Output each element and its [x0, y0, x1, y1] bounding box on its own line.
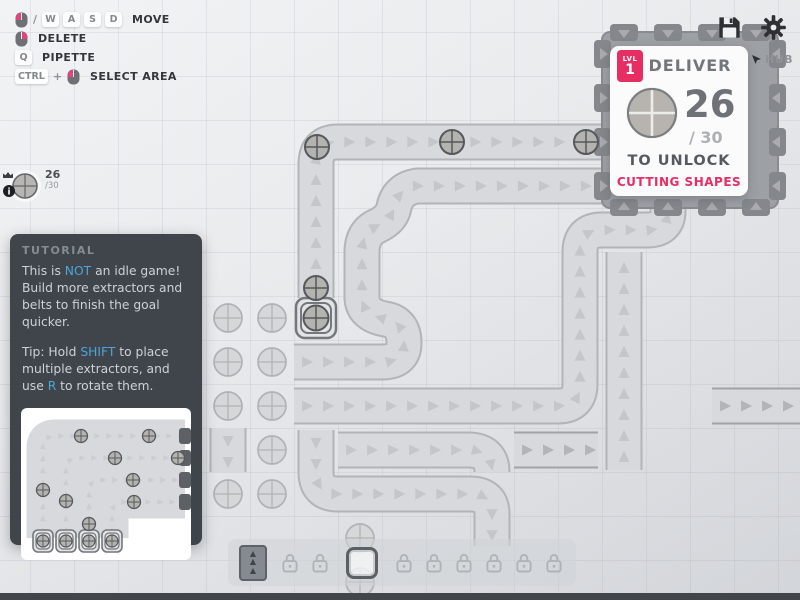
toolbar-slot-extractor-selected[interactable]	[346, 547, 378, 579]
select-area-label: SELECT AREA	[90, 70, 177, 83]
game-screen: / W A S D MOVE DELETE Q PIPETTE CTRL + S…	[0, 0, 800, 600]
tutorial-extractor-shape	[60, 535, 72, 547]
tutorial-extractor-shape	[83, 535, 95, 547]
tutorial-belts	[40, 433, 185, 538]
lock-icon	[456, 552, 473, 573]
lock-icon	[282, 552, 299, 573]
toolbar-slot-locked[interactable]	[546, 552, 563, 573]
toolbar-slot-locked[interactable]	[456, 552, 473, 573]
toolbar-slot-locked[interactable]	[516, 552, 533, 573]
move-label: MOVE	[132, 13, 170, 26]
resource-circle	[214, 392, 242, 420]
key-w: W	[42, 12, 59, 27]
resource-circle	[214, 304, 242, 332]
gear-icon	[760, 14, 787, 41]
resource-circle	[258, 436, 286, 464]
toolbar-slot-locked[interactable]	[396, 552, 413, 573]
mouse-right-click-icon	[15, 31, 28, 47]
goal-shape-icon	[623, 84, 681, 142]
pinned-goal-current: 26	[45, 168, 60, 181]
settings-button[interactable]	[758, 12, 788, 42]
lock-icon	[396, 552, 413, 573]
deliver-title: DELIVER	[646, 56, 734, 75]
resource-circle	[258, 304, 286, 332]
lock-icon	[426, 552, 443, 573]
reward-label: CUTTING SHAPES	[610, 175, 748, 189]
hub-label: HUB	[765, 53, 793, 66]
key-a: A	[63, 12, 80, 27]
building-toolbar[interactable]: ▲▲▲	[228, 539, 576, 586]
delete-label: DELETE	[38, 32, 87, 45]
shape-item	[305, 135, 329, 159]
tutorial-paragraph-2: Tip: Hold SHIFT to place multiple extrac…	[22, 344, 191, 395]
tutorial-item	[143, 430, 156, 443]
tutorial-item	[172, 452, 185, 465]
save-icon	[716, 14, 743, 41]
key-d: D	[105, 12, 122, 27]
toolbar-slot-belt[interactable]: ▲▲▲	[239, 545, 267, 581]
separator: /	[33, 13, 37, 26]
tutorial-paragraph-1: This is NOT an idle game! Build more ext…	[22, 263, 191, 331]
tutorial-item	[109, 452, 122, 465]
lock-icon	[516, 552, 533, 573]
keybind-hints: / W A S D MOVE DELETE Q PIPETTE CTRL + S…	[13, 10, 177, 86]
tutorial-item	[128, 496, 141, 509]
keybind-delete: DELETE	[13, 29, 177, 48]
toolbar-slot-locked[interactable]	[312, 552, 329, 573]
toolbar-slot-locked[interactable]	[426, 552, 443, 573]
level-badge: LVL 1	[617, 50, 643, 82]
tutorial-extractor-shape	[37, 535, 49, 547]
pipette-label: PIPETTE	[42, 51, 95, 64]
resource-circle	[258, 480, 286, 508]
lock-icon	[312, 552, 329, 573]
goal-shape-circle	[13, 174, 37, 198]
unlock-label: TO UNLOCK	[610, 153, 748, 169]
resource-circle	[214, 348, 242, 376]
shape-item	[440, 130, 464, 154]
pinned-goal[interactable]: i 26 /30	[2, 166, 92, 208]
extractor-tool-icon	[346, 547, 378, 579]
tutorial-item	[37, 484, 50, 497]
resource-circle	[258, 348, 286, 376]
mouse-left-click-icon	[15, 12, 28, 28]
tutorial-item	[75, 430, 88, 443]
goal-count: / 30	[689, 128, 723, 147]
resource-circle	[258, 392, 286, 420]
key-q: Q	[15, 50, 32, 65]
belt-tool-icon: ▲▲▲	[239, 545, 267, 581]
keybind-select-area: CTRL + SELECT AREA	[13, 67, 177, 86]
pinned-goal-total: /30	[45, 181, 59, 191]
resource-circle	[214, 480, 242, 508]
svg-text:i: i	[7, 187, 10, 197]
toolbar-slot-locked[interactable]	[486, 552, 503, 573]
shape-item	[574, 130, 598, 154]
tutorial-item	[127, 474, 140, 487]
tutorial-extractor-shape	[106, 535, 118, 547]
shape-item	[304, 276, 328, 300]
level-value: 1	[625, 63, 635, 78]
tutorial-title: TUTORIAL	[22, 244, 191, 257]
hub-tag: HUB	[751, 53, 793, 66]
conveyor-belt[interactable]	[294, 186, 606, 362]
lock-icon	[486, 552, 503, 573]
mouse-left-click-icon	[67, 69, 80, 85]
top-icons	[714, 12, 788, 42]
crown-icon	[3, 172, 13, 178]
hub-goal-panel: LVL 1 DELIVER 26 / 30 TO UNLOCK CUTTING …	[610, 46, 748, 196]
keybind-move: / W A S D MOVE	[13, 10, 177, 29]
tutorial-item	[60, 495, 73, 508]
keybind-pipette: Q PIPETTE	[13, 48, 177, 67]
lock-icon	[546, 552, 563, 573]
save-button[interactable]	[714, 12, 744, 42]
key-ctrl: CTRL	[15, 69, 48, 84]
cursor-icon	[751, 54, 762, 65]
toolbar-slot-locked[interactable]	[282, 552, 299, 573]
tutorial-item	[83, 518, 96, 531]
tutorial-panel: TUTORIAL This is NOT an idle game! Build…	[10, 234, 202, 545]
key-s: S	[84, 12, 101, 27]
delivered-count: 26	[684, 86, 736, 124]
separator: +	[53, 70, 62, 83]
bottom-bar	[0, 593, 800, 600]
extractor-resource	[304, 306, 329, 331]
conveyor-belt[interactable]	[338, 450, 492, 472]
tutorial-illustration	[21, 408, 191, 560]
